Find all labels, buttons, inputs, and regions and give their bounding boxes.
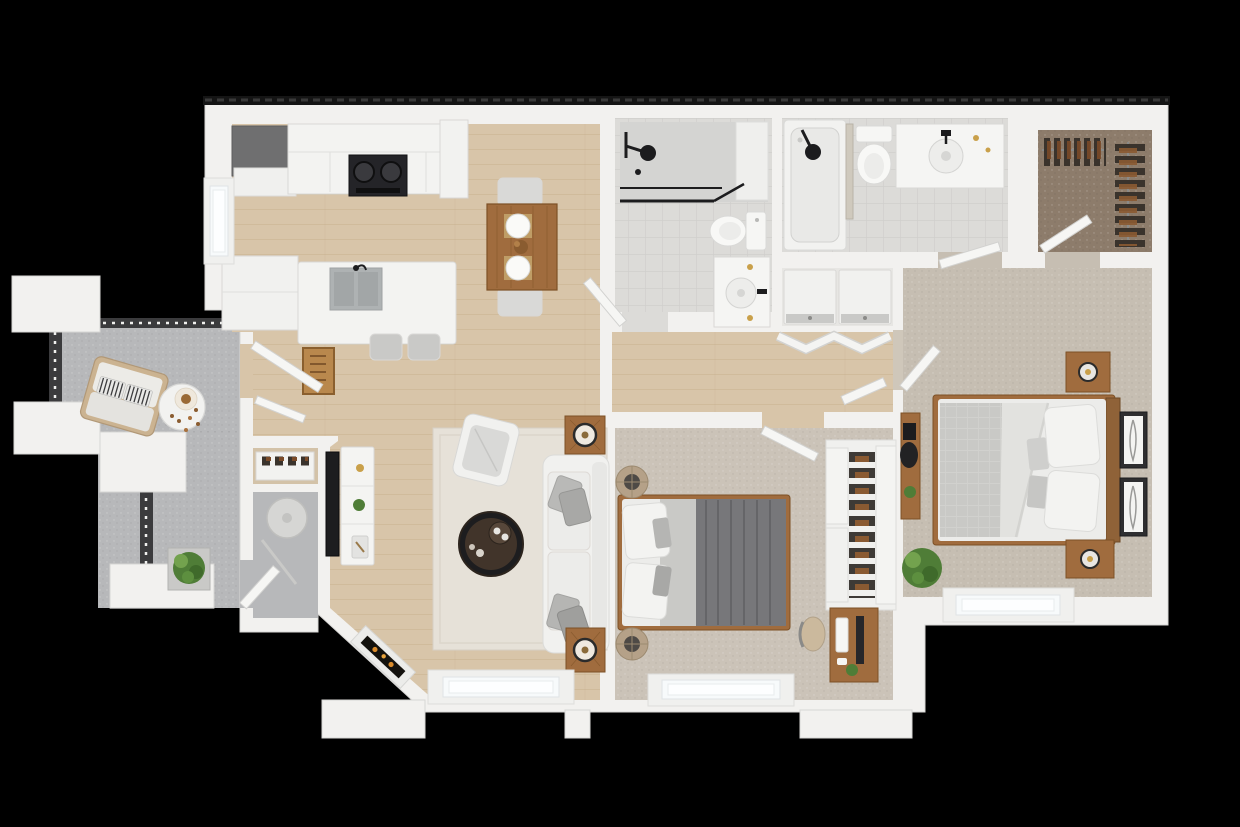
pc-tower xyxy=(836,618,848,652)
side-table-top xyxy=(565,416,605,454)
tv-wall xyxy=(326,447,374,565)
wall-art-1 xyxy=(1120,412,1147,468)
pillow-2 xyxy=(1044,470,1101,532)
refrigerator-front xyxy=(234,168,296,196)
bedroom-2-doorway xyxy=(762,412,824,428)
privacy-wall-1 xyxy=(12,276,100,332)
kitchen-window xyxy=(204,178,234,264)
sliding-panel-1 xyxy=(826,448,848,524)
desk-plant-icon xyxy=(904,486,916,498)
side-table-bottom xyxy=(566,628,605,672)
desk-plant-icon-2 xyxy=(846,664,858,676)
dining-chair-2 xyxy=(498,288,542,316)
shower-bench xyxy=(736,122,768,200)
bathroom-threshold xyxy=(622,312,668,332)
round-coffee-table xyxy=(459,512,523,576)
dining-chair-1 xyxy=(498,178,542,206)
roof-edge xyxy=(203,96,1170,105)
console-decor-icon xyxy=(356,464,364,472)
tub-glass-towel xyxy=(846,124,853,219)
sliding-panel-2 xyxy=(826,528,848,602)
bedroom-2-window xyxy=(648,674,794,706)
exterior-stub-1 xyxy=(565,710,590,738)
sliding-door-closet xyxy=(826,440,896,610)
primary-toilet xyxy=(856,126,892,184)
window-counter xyxy=(222,256,298,330)
exterior-stub-2 xyxy=(800,710,912,738)
primary-desk-chair xyxy=(900,442,918,468)
floor-plan-render xyxy=(0,0,1240,827)
bar-stool-1 xyxy=(370,334,402,360)
bedroom-2-bed xyxy=(618,495,790,630)
pouf-bottom xyxy=(616,628,648,660)
nightstand-top xyxy=(1066,352,1110,392)
tv xyxy=(326,452,339,556)
island-with-sink xyxy=(298,262,456,344)
primary-window xyxy=(943,588,1074,622)
pillow-1 xyxy=(1043,404,1100,468)
entry-doorway xyxy=(240,344,253,398)
floor-plant xyxy=(902,548,942,588)
sliding-panel-3 xyxy=(876,446,896,604)
primary-bedroom-doorway xyxy=(893,330,903,390)
laptop-icon xyxy=(903,423,916,440)
shoe-closet xyxy=(256,452,314,480)
vanity-sink xyxy=(714,257,770,327)
dining-table xyxy=(487,204,557,290)
bathtub xyxy=(784,120,846,250)
walk-in-closet-doorway xyxy=(1045,252,1100,268)
range-cooktop xyxy=(349,155,407,196)
privacy-wall-3 xyxy=(100,432,186,492)
exterior-step-left xyxy=(322,700,425,738)
headboard xyxy=(1106,398,1120,542)
shoe-shelf xyxy=(256,452,314,480)
floor-plan-svg xyxy=(0,0,1240,827)
bar-stool-2 xyxy=(408,334,440,360)
monitor xyxy=(856,616,864,664)
pantry-cabinet xyxy=(440,120,468,198)
console-plant-icon xyxy=(353,499,365,511)
bedroom-2-desk-chair xyxy=(801,617,825,651)
wall-art-2 xyxy=(1120,478,1147,536)
primary-desk xyxy=(900,413,920,519)
gray-duvet xyxy=(696,499,786,626)
nightstand-bottom xyxy=(1066,540,1114,578)
keyboard xyxy=(837,658,847,665)
primary-bed xyxy=(933,395,1120,545)
primary-vanity xyxy=(896,124,1004,188)
pouf-top xyxy=(616,466,648,498)
sofa xyxy=(543,455,609,653)
planter-box xyxy=(168,548,210,590)
living-window xyxy=(428,670,574,704)
